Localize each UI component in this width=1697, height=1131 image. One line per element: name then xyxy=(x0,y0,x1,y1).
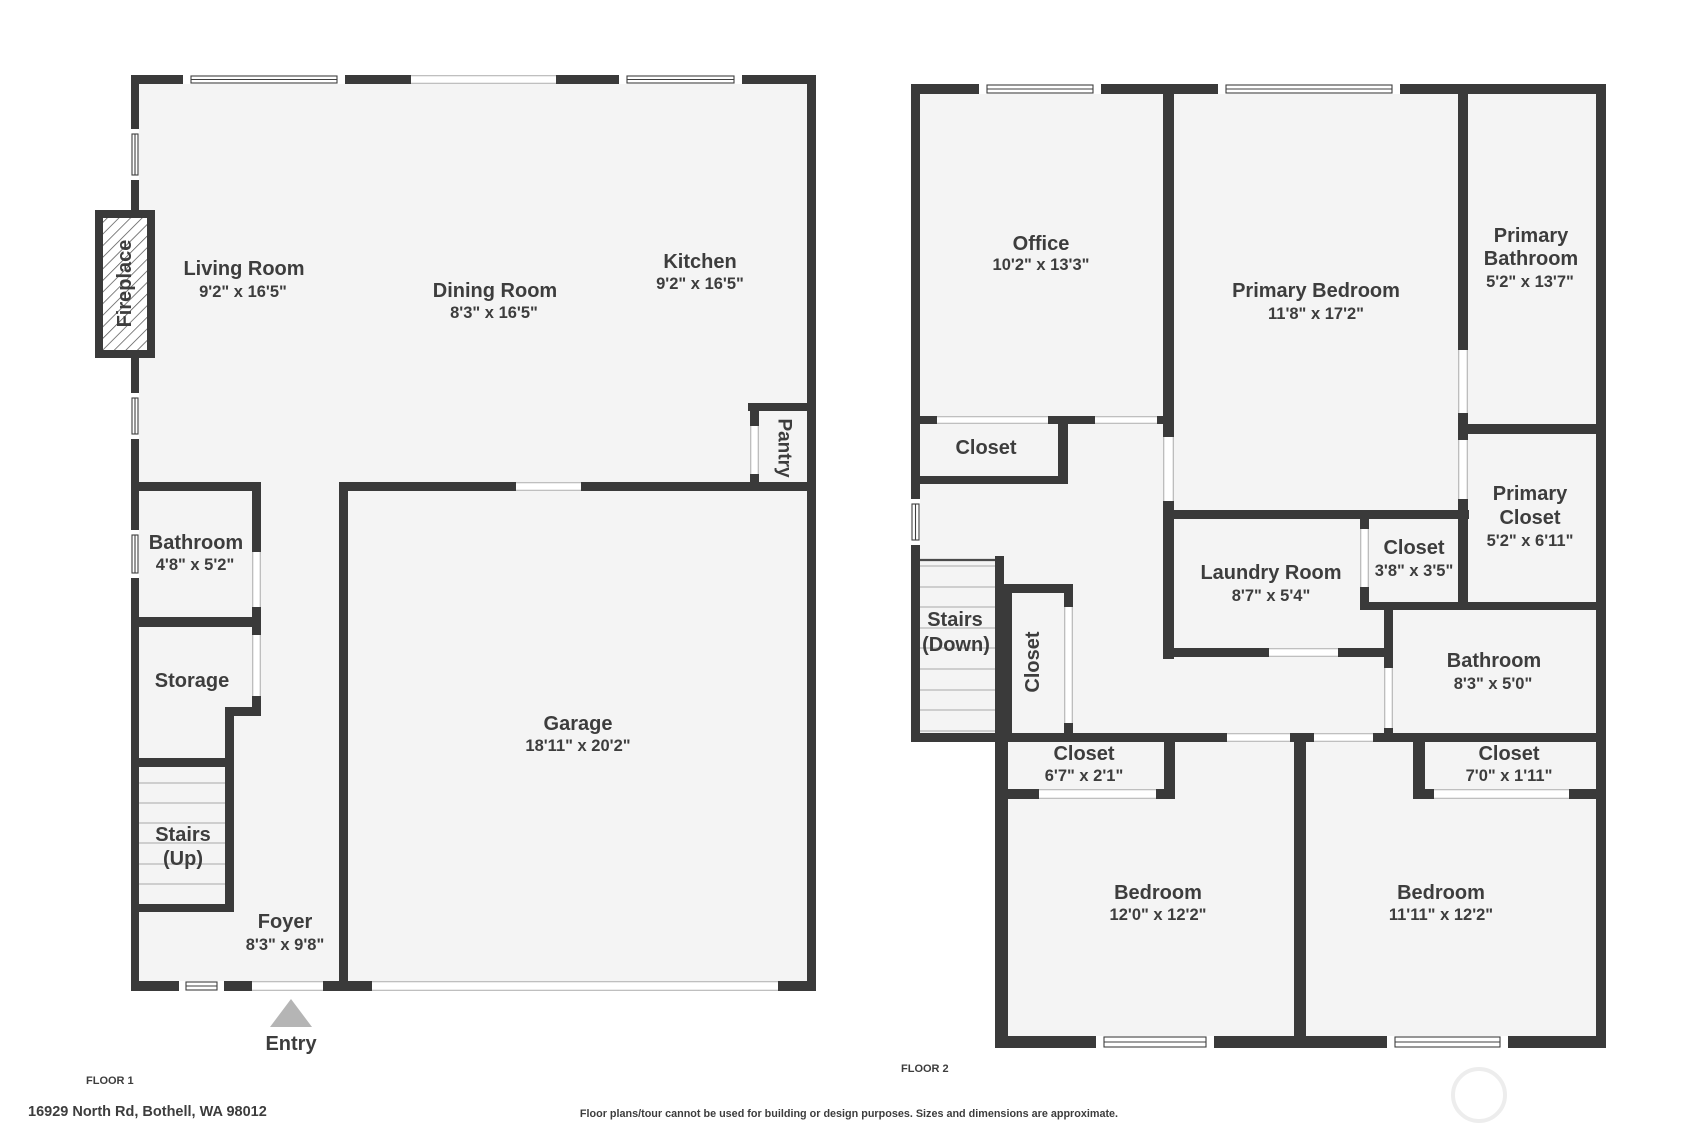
svg-text:Dining Room: Dining Room xyxy=(433,280,557,302)
svg-text:9'2" x 16'5": 9'2" x 16'5" xyxy=(199,283,287,301)
svg-text:18'11" x 20'2": 18'11" x 20'2" xyxy=(525,737,630,755)
svg-text:Primary: Primary xyxy=(1493,483,1568,505)
svg-text:Closet: Closet xyxy=(1053,743,1114,765)
svg-text:8'7" x 5'4": 8'7" x 5'4" xyxy=(1232,587,1311,605)
svg-text:6'7" x 2'1": 6'7" x 2'1" xyxy=(1045,767,1124,785)
svg-text:Stairs: Stairs xyxy=(927,609,983,631)
svg-text:Office: Office xyxy=(1013,233,1070,255)
svg-text:Closet: Closet xyxy=(955,437,1016,459)
svg-text:5'2" x 13'7": 5'2" x 13'7" xyxy=(1486,273,1574,291)
svg-text:Pantry: Pantry xyxy=(774,418,795,478)
svg-text:Bathroom: Bathroom xyxy=(149,532,243,554)
svg-text:Garage: Garage xyxy=(544,713,613,735)
svg-text:Bedroom: Bedroom xyxy=(1114,882,1202,904)
svg-text:16929 North Rd, Bothell, WA 98: 16929 North Rd, Bothell, WA 98012 xyxy=(28,1104,267,1120)
svg-text:FLOOR 2: FLOOR 2 xyxy=(901,1063,949,1075)
svg-text:9'2" x 16'5": 9'2" x 16'5" xyxy=(656,275,744,293)
svg-text:4'8" x 5'2": 4'8" x 5'2" xyxy=(156,556,235,574)
svg-text:10'2" x 13'3": 10'2" x 13'3" xyxy=(993,256,1090,274)
svg-text:(Down): (Down) xyxy=(922,634,990,656)
svg-text:Storage: Storage xyxy=(155,670,229,692)
svg-text:Kitchen: Kitchen xyxy=(663,251,736,273)
svg-text:(Up): (Up) xyxy=(163,848,203,870)
svg-text:11'11" x 12'2": 11'11" x 12'2" xyxy=(1389,906,1493,924)
svg-text:Stairs: Stairs xyxy=(155,824,211,846)
svg-text:Living Room: Living Room xyxy=(183,258,304,280)
svg-text:8'3" x 5'0": 8'3" x 5'0" xyxy=(1454,675,1533,693)
svg-text:Fireplace: Fireplace xyxy=(114,240,136,328)
svg-text:Bedroom: Bedroom xyxy=(1397,882,1485,904)
svg-text:Closet: Closet xyxy=(1383,537,1444,559)
svg-text:Bathroom: Bathroom xyxy=(1447,650,1541,672)
svg-text:Closet: Closet xyxy=(1478,743,1539,765)
svg-text:7'0" x 1'11": 7'0" x 1'11" xyxy=(1466,767,1553,785)
svg-text:5'2" x 6'11": 5'2" x 6'11" xyxy=(1487,532,1574,550)
svg-text:Entry: Entry xyxy=(265,1033,317,1055)
svg-text:Floor plans/tour cannot be use: Floor plans/tour cannot be used for buil… xyxy=(580,1108,1118,1120)
svg-text:Primary: Primary xyxy=(1494,225,1569,247)
svg-text:Bathroom: Bathroom xyxy=(1484,248,1578,270)
svg-text:FLOOR 1: FLOOR 1 xyxy=(86,1075,134,1087)
svg-text:3'8" x 3'5": 3'8" x 3'5" xyxy=(1375,562,1454,580)
svg-text:12'0" x 12'2": 12'0" x 12'2" xyxy=(1110,906,1207,924)
svg-text:11'8" x 17'2": 11'8" x 17'2" xyxy=(1268,305,1364,323)
svg-text:Closet: Closet xyxy=(1022,631,1044,692)
svg-text:Closet: Closet xyxy=(1499,507,1560,529)
svg-text:8'3" x 16'5": 8'3" x 16'5" xyxy=(450,304,538,322)
svg-text:Primary Bedroom: Primary Bedroom xyxy=(1232,280,1400,302)
svg-text:Laundry Room: Laundry Room xyxy=(1200,562,1341,584)
svg-text:8'3" x 9'8": 8'3" x 9'8" xyxy=(246,936,325,954)
svg-text:Foyer: Foyer xyxy=(258,911,313,933)
